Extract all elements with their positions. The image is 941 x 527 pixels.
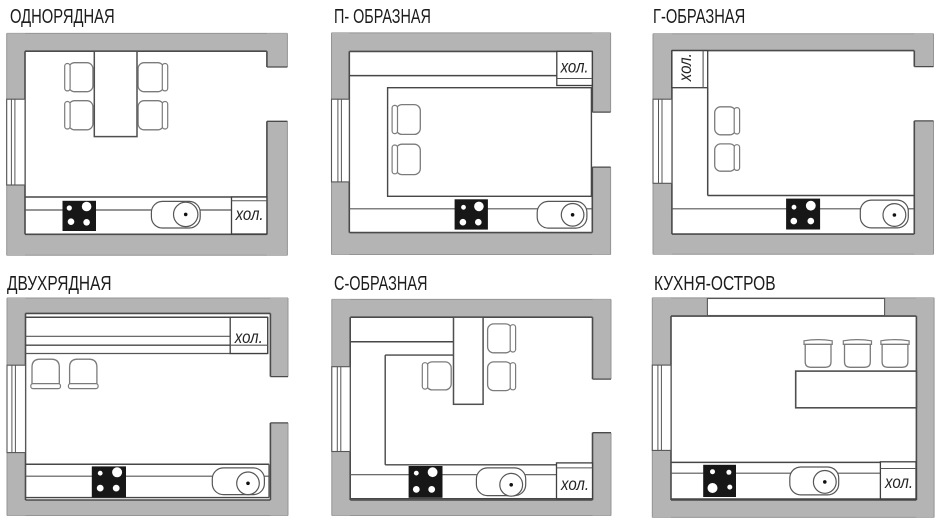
svg-text:хол.: хол. (560, 57, 589, 77)
svg-text:хол.: хол. (884, 472, 913, 492)
svg-text:хол.: хол. (675, 53, 695, 82)
svg-text:хол.: хол. (560, 474, 589, 494)
svg-text:хол.: хол. (234, 327, 263, 347)
svg-text:хол.: хол. (235, 204, 264, 224)
